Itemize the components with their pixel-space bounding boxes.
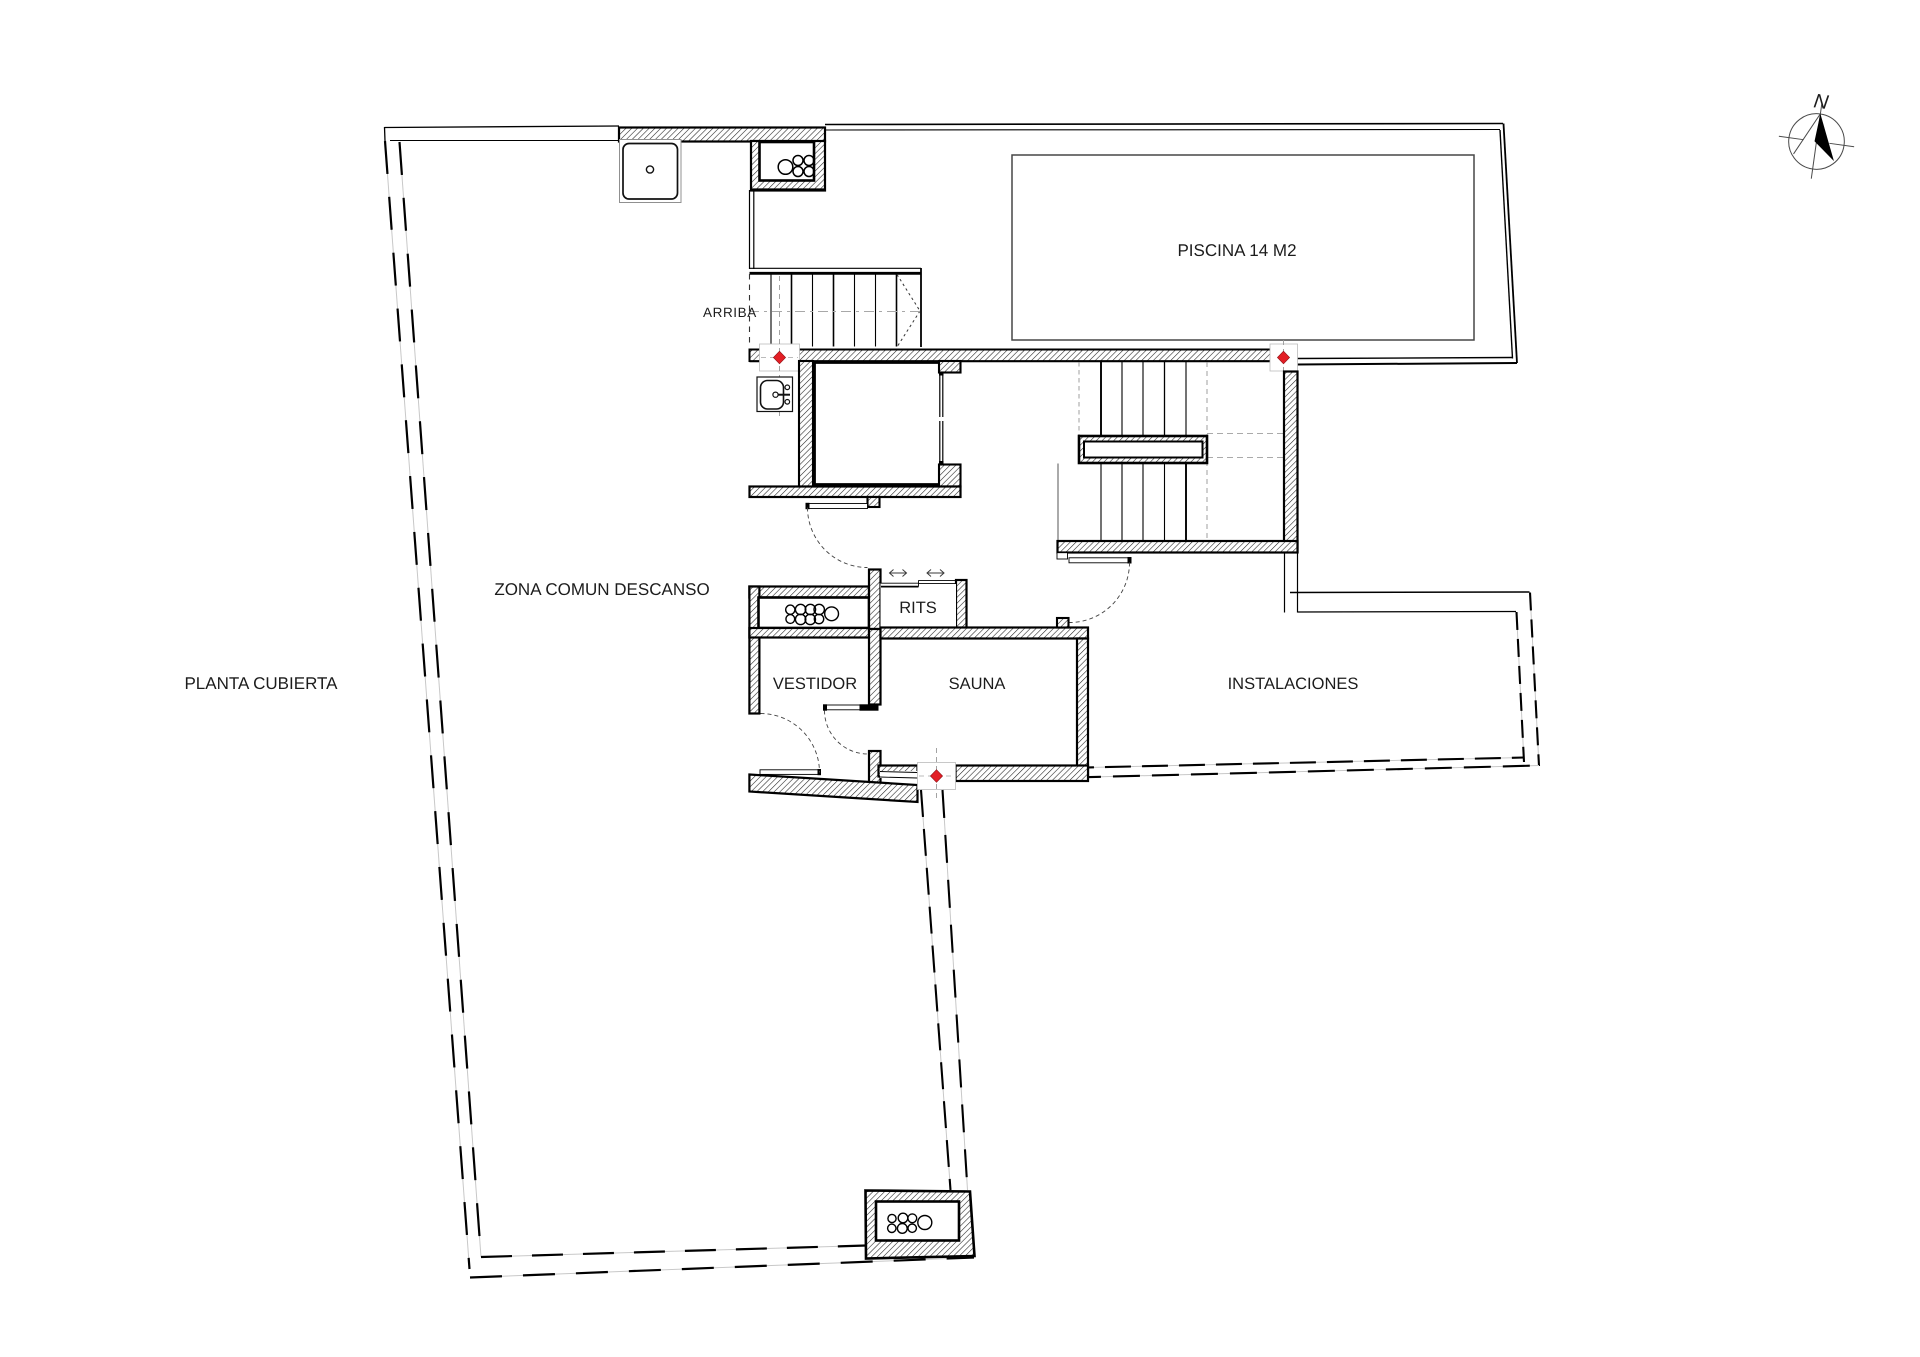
svg-text:PISCINA 14 M2: PISCINA 14 M2 bbox=[1177, 241, 1296, 260]
svg-text:ARRIBA: ARRIBA bbox=[703, 305, 757, 320]
svg-text:INSTALACIONES: INSTALACIONES bbox=[1228, 675, 1359, 693]
svg-text:PLANTA CUBIERTA: PLANTA CUBIERTA bbox=[184, 674, 338, 693]
svg-text:RITS: RITS bbox=[899, 599, 937, 617]
svg-text:ZONA COMUN DESCANSO: ZONA COMUN DESCANSO bbox=[494, 580, 709, 599]
svg-text:SAUNA: SAUNA bbox=[949, 675, 1006, 693]
svg-text:VESTIDOR: VESTIDOR bbox=[773, 675, 857, 693]
